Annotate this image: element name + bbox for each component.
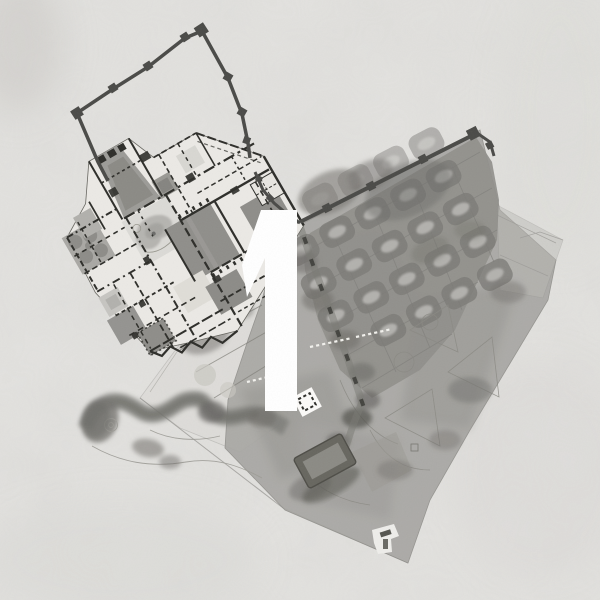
site-plan-canvas (0, 0, 600, 600)
paper-grain (0, 0, 600, 600)
site-plan-figure: 1 (0, 0, 600, 600)
